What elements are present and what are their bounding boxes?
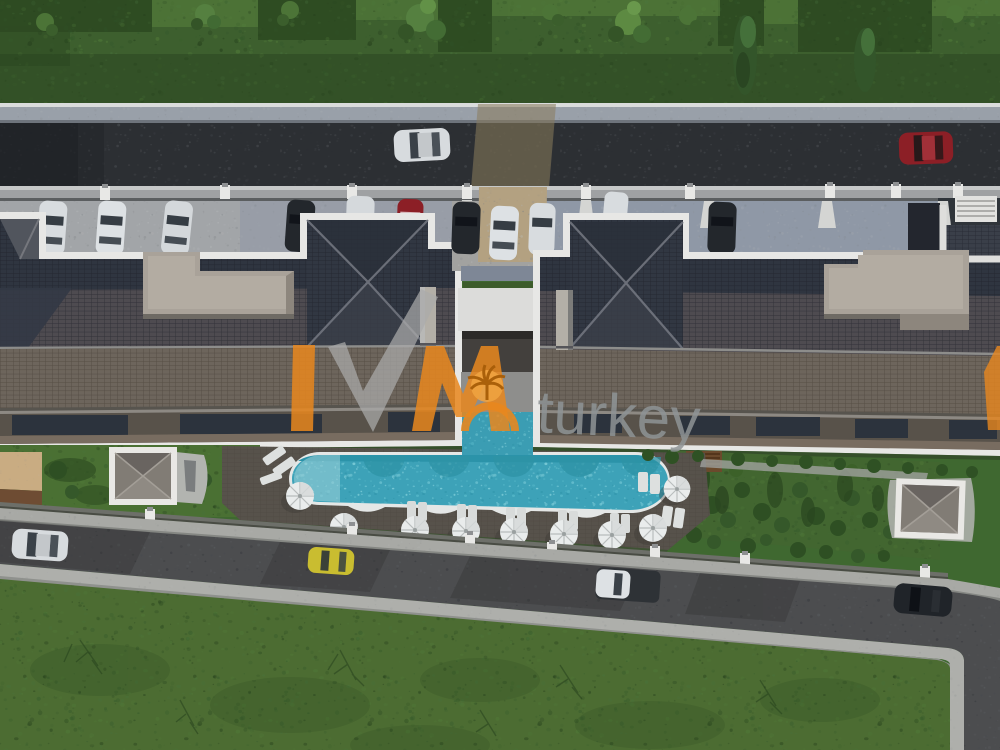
svg-text:turkey: turkey: [535, 378, 702, 453]
